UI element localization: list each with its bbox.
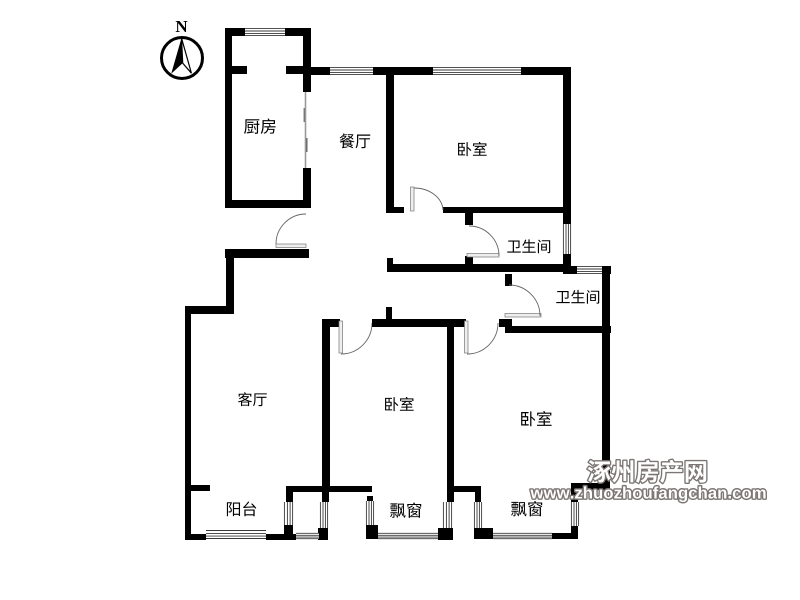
- svg-text:N: N: [175, 17, 188, 36]
